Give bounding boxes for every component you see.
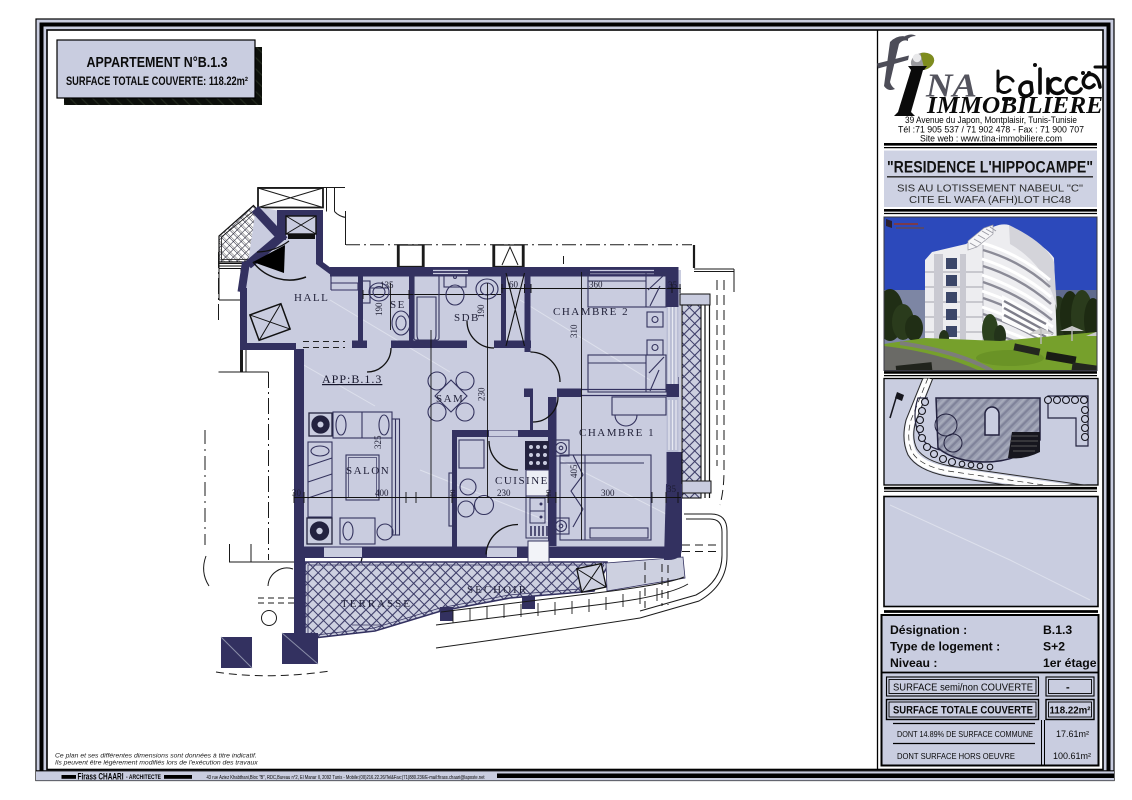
svg-text:-: -	[1066, 682, 1070, 694]
svg-text:HALL: HALL	[294, 292, 329, 304]
svg-text:SALON: SALON	[346, 465, 390, 477]
svg-text:10: 10	[544, 489, 553, 497]
svg-text:60: 60	[509, 280, 519, 290]
svg-text:TERRASSE: TERRASSE	[341, 598, 412, 610]
svg-text:B.1.3: B.1.3	[1043, 623, 1072, 637]
svg-text:43 rue Aziez Khabthani,Bloc "B: 43 rue Aziez Khabthani,Bloc "B", RDC,Bur…	[207, 775, 485, 781]
svg-text:SIS AU LOTISSEMENT NABEUL "C": SIS AU LOTISSEMENT NABEUL "C"	[897, 184, 1084, 195]
svg-text:"RESIDENCE L'HIPPOCAMPE": "RESIDENCE L'HIPPOCAMPE"	[887, 159, 1093, 177]
svg-text:118.22m²: 118.22m²	[1050, 706, 1092, 717]
svg-text:Type de logement :: Type de logement :	[890, 640, 1000, 654]
svg-text:35: 35	[667, 484, 677, 494]
svg-text:35: 35	[668, 280, 678, 290]
svg-text:SURFACE TOTALE COUVERTE: 118.2: SURFACE TOTALE COUVERTE: 118.22m²	[66, 74, 248, 88]
svg-text:SAM: SAM	[436, 393, 464, 405]
svg-text:- ARCHITECTE: - ARCHITECTE	[126, 775, 161, 781]
svg-text:SDB: SDB	[454, 312, 480, 324]
svg-text:300: 300	[601, 488, 615, 498]
svg-text:10: 10	[448, 489, 457, 497]
svg-text:CHAMBRE 2: CHAMBRE 2	[553, 306, 629, 318]
svg-text:SECHOIR: SECHOIR	[467, 584, 528, 596]
svg-text:230: 230	[477, 387, 487, 401]
svg-text:230: 230	[497, 488, 511, 498]
svg-text:Niveau :: Niveau :	[890, 656, 937, 670]
svg-text:APPARTEMENT N°B.1.3: APPARTEMENT N°B.1.3	[87, 55, 228, 71]
svg-text:310: 310	[569, 324, 579, 338]
svg-text:30: 30	[292, 488, 302, 498]
svg-text:17.61m²: 17.61m²	[1056, 729, 1089, 739]
svg-text:Firass CHAARI: Firass CHAARI	[78, 771, 124, 781]
svg-text:Site web : www.tina-immobilier: Site web : www.tina-immobiliere.com	[920, 133, 1062, 143]
svg-text:190: 190	[374, 302, 384, 316]
svg-text:APP:B.1.3: APP:B.1.3	[322, 372, 382, 386]
svg-text:405: 405	[569, 464, 579, 478]
svg-text:DONT SURFACE HORS OEUVRE: DONT SURFACE HORS OEUVRE	[897, 751, 1015, 761]
svg-text:DONT 14.89% DE SURFACE COMMUNE: DONT 14.89% DE SURFACE COMMUNE	[897, 729, 1033, 739]
svg-text:100.61m²: 100.61m²	[1053, 751, 1091, 761]
svg-text:Ils peuvent être légèrement mo: Ils peuvent être légèrement modifiés lor…	[55, 760, 258, 767]
svg-text:CHAMBRE 1: CHAMBRE 1	[579, 427, 655, 439]
svg-text:400: 400	[375, 488, 389, 498]
svg-text:135: 135	[380, 280, 394, 290]
svg-text:SURFACE TOTALE COUVERTE: SURFACE TOTALE COUVERTE	[893, 705, 1033, 717]
svg-text:SURFACE semi/non COUVERTE: SURFACE semi/non COUVERTE	[893, 683, 1033, 694]
svg-text:S+2: S+2	[1043, 640, 1065, 654]
svg-text:CITE EL WAFA (AFH)LOT HC48: CITE EL WAFA (AFH)LOT HC48	[909, 195, 1071, 206]
svg-text:360: 360	[589, 280, 603, 290]
svg-text:325: 325	[373, 435, 383, 449]
svg-text:Ce plan et ses différentes dim: Ce plan et ses différentes dimensions so…	[55, 753, 257, 760]
svg-text:Désignation :: Désignation :	[890, 623, 967, 637]
svg-text:SE: SE	[390, 299, 406, 311]
svg-text:1er étage: 1er étage	[1043, 656, 1097, 670]
svg-text:CUISINE: CUISINE	[495, 475, 549, 487]
